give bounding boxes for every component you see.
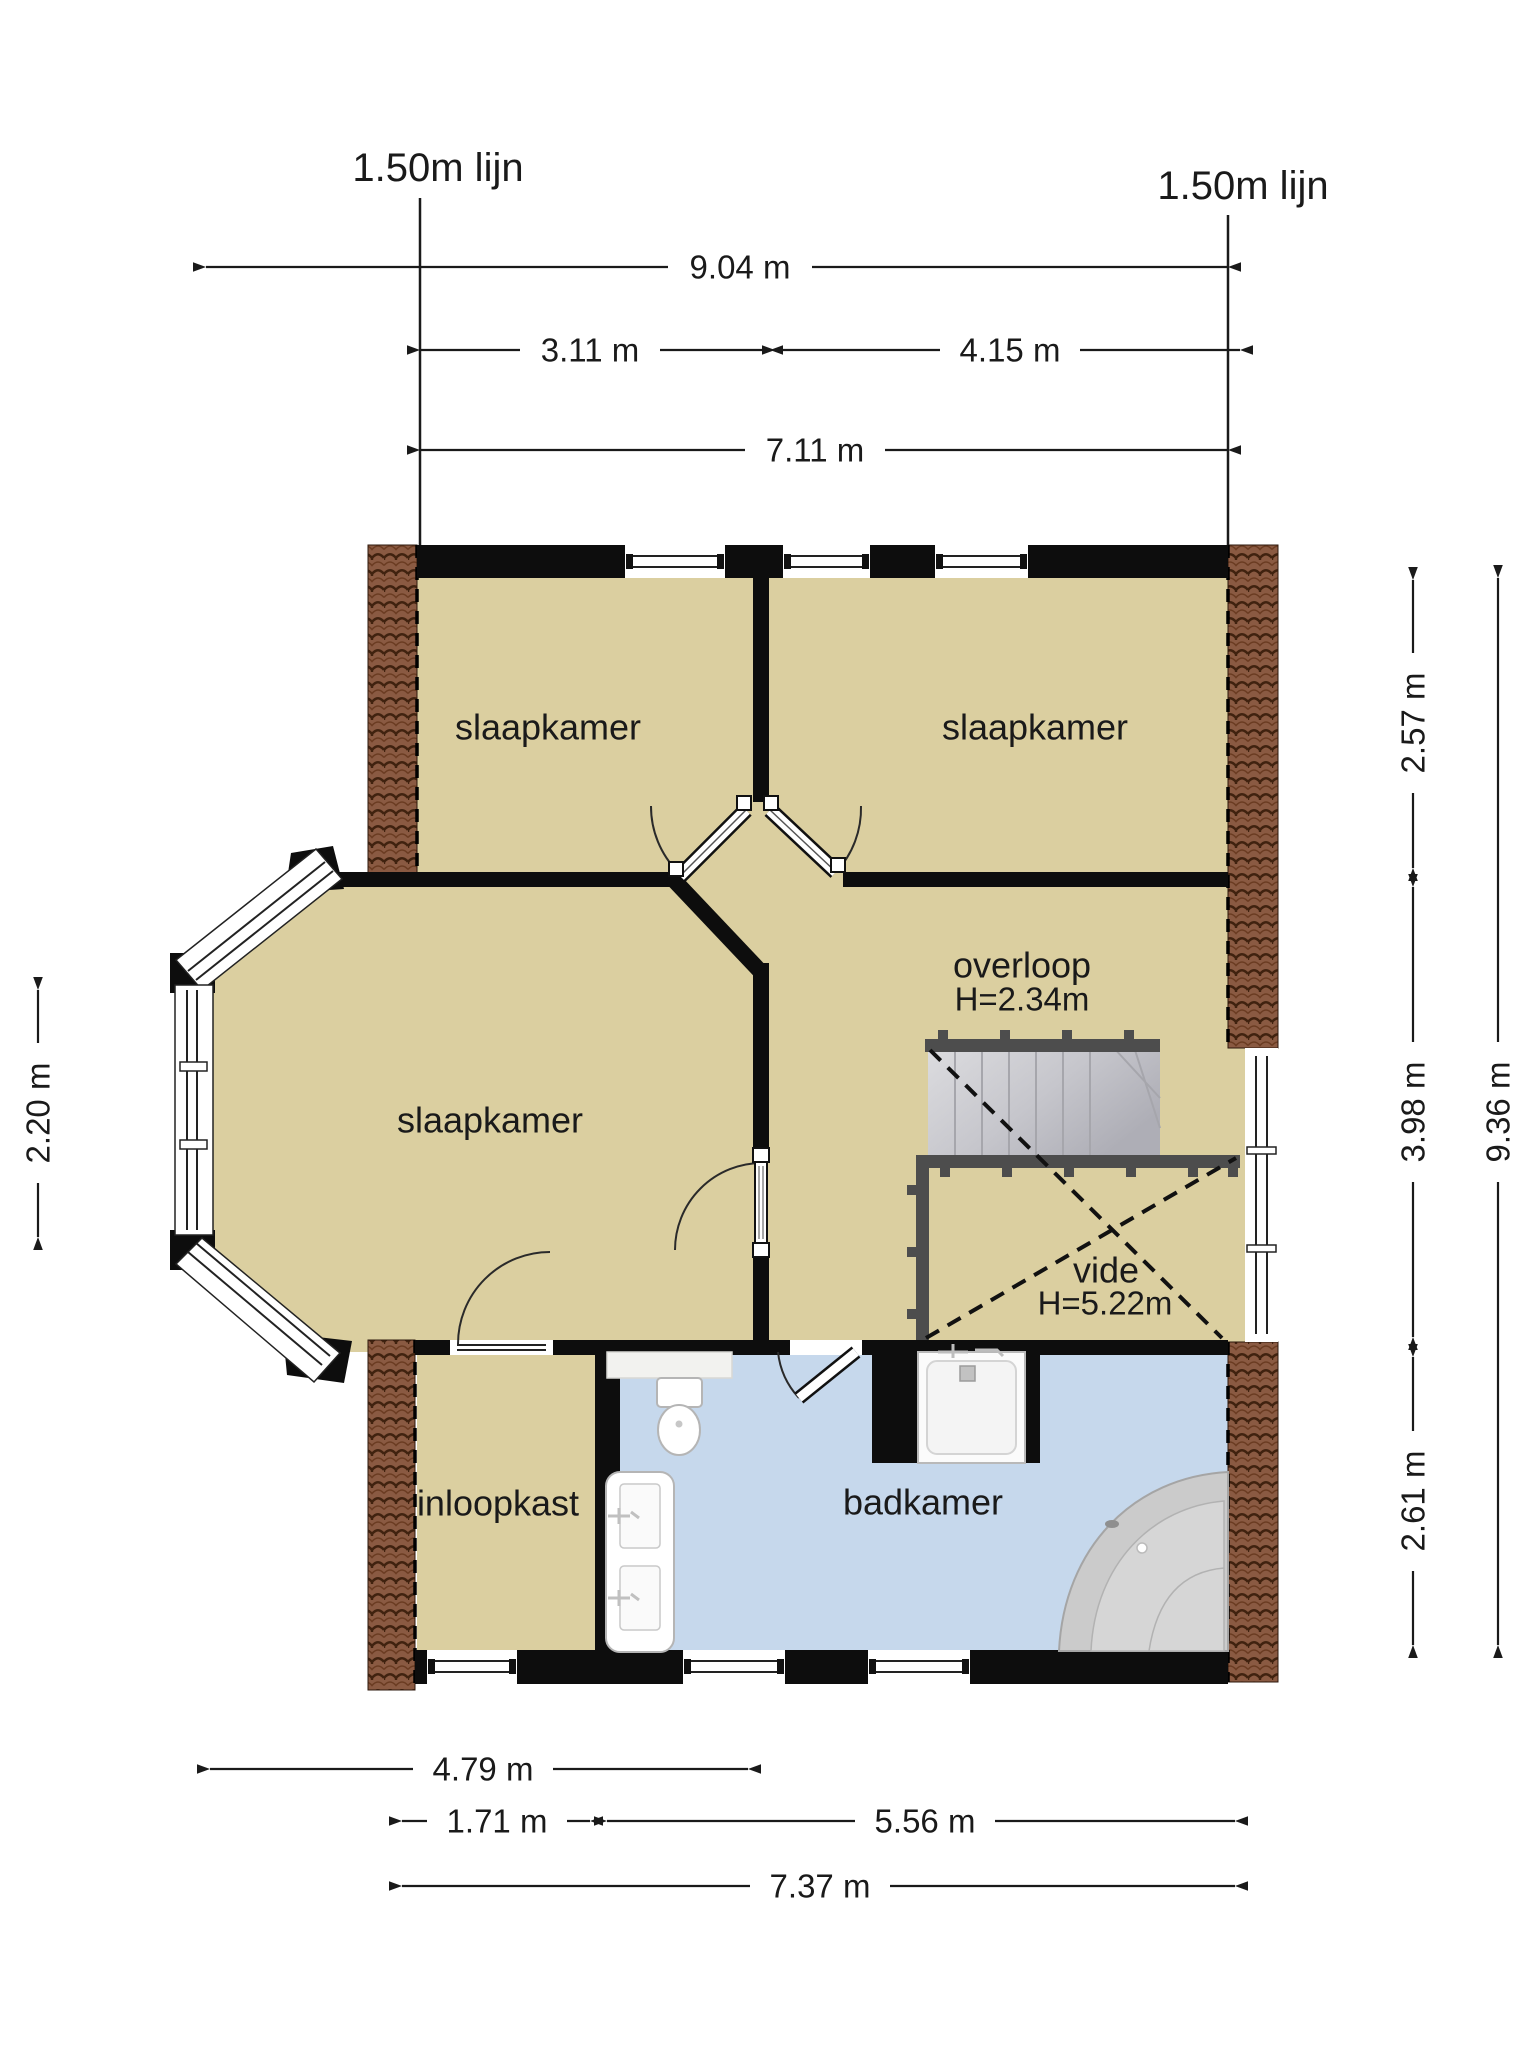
roof-tiles-right-upper — [1228, 545, 1278, 1048]
bathtub-drain — [1137, 1543, 1147, 1553]
wall-mid-1 — [415, 1340, 452, 1355]
dim-top-right-span: 4.15 m — [960, 332, 1061, 369]
wall-top-pier-1 — [725, 545, 783, 578]
floorplan-canvas: 1.50m lijn 1.50m lijn 9.04 m 3.11 m 4.15… — [0, 0, 1536, 2048]
roof-tiles-right-lower — [1228, 1342, 1278, 1682]
dim-bottom-total: 7.37 m — [770, 1868, 871, 1905]
double-washbasin — [606, 1472, 674, 1652]
room-label-bedroom-top-right: slaapkamer — [942, 707, 1128, 748]
dim-bottom-bedroom: 4.79 m — [433, 1751, 534, 1788]
window-bottom-3 — [868, 1650, 970, 1684]
wall-bottom-1 — [415, 1650, 427, 1684]
wall-top-1 — [417, 545, 625, 578]
window-top-2 — [783, 545, 870, 578]
dim-right-total: 9.36 m — [1480, 1062, 1517, 1163]
wall-landing-upper — [753, 963, 769, 1159]
bathtub-fitting — [1105, 1520, 1119, 1528]
dim-bay: 2.20 m — [20, 1063, 57, 1164]
bay-window-left-segment — [175, 985, 213, 1235]
dim-total-top: 9.04 m — [690, 249, 791, 286]
window-right-band — [1245, 1048, 1278, 1342]
wall-shower-left — [872, 1355, 918, 1463]
wall-top-2 — [1028, 545, 1228, 578]
dim-bottom-closet: 1.71 m — [447, 1803, 548, 1840]
shower-drain — [960, 1366, 975, 1381]
dim-top-interior: 7.11 m — [766, 432, 864, 469]
roof-tiles-left-upper — [368, 545, 417, 873]
room-label-closet: inloopkast — [417, 1483, 579, 1524]
window-top-3 — [935, 545, 1028, 578]
roof-tiles-left-lower — [368, 1340, 415, 1690]
wall-landing-lower — [753, 1245, 769, 1355]
wall-bottom-2 — [517, 1650, 683, 1684]
dim-bottom-bathroom: 5.56 m — [875, 1803, 976, 1840]
wall-bottom-4 — [970, 1650, 1228, 1684]
wall-top-pier-2 — [870, 545, 935, 578]
ref-label-right: 1.50m lijn — [1157, 164, 1328, 208]
room-label-bedroom-top-left: slaapkamer — [455, 707, 641, 748]
room-height-landing: H=2.34m — [955, 981, 1090, 1018]
wall-bedroom-partition — [753, 578, 769, 802]
room-label-bathroom: badkamer — [843, 1482, 1003, 1523]
floorplan-drawing: 1.50m lijn 1.50m lijn 9.04 m 3.11 m 4.15… — [0, 0, 1536, 2048]
toilet-shelf — [607, 1352, 732, 1378]
wall-bottom-3 — [785, 1650, 868, 1684]
wall-bedroom-left-top — [302, 872, 675, 887]
wall-mid-3 — [862, 1340, 1228, 1355]
room-height-vide: H=5.22m — [1038, 1285, 1173, 1322]
stair-flight — [928, 1047, 1160, 1157]
shower — [918, 1344, 1025, 1463]
window-bottom-2 — [683, 1650, 785, 1684]
toilet — [657, 1378, 702, 1455]
room-label-bedroom-left: slaapkamer — [397, 1100, 583, 1141]
window-bottom-1 — [427, 1650, 517, 1684]
ref-label-left: 1.50m lijn — [352, 146, 523, 190]
dim-right-upper: 2.57 m — [1395, 673, 1432, 774]
dim-right-lower: 2.61 m — [1395, 1451, 1432, 1552]
dim-right-middle: 3.98 m — [1395, 1062, 1432, 1163]
window-top-1 — [625, 545, 725, 578]
dim-top-left-span: 3.11 m — [541, 332, 639, 369]
wall-bedroom-right-bottom — [843, 872, 1228, 887]
room-label-landing: overloop — [953, 945, 1091, 986]
